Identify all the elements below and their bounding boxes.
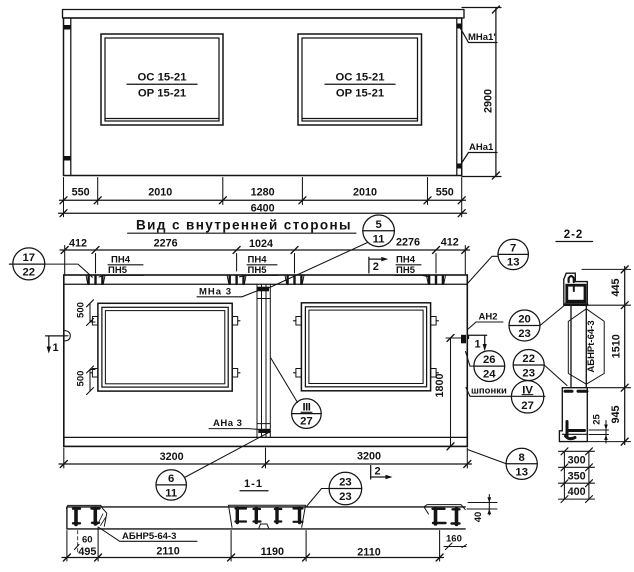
svg-text:445: 445 xyxy=(610,278,622,296)
svg-text:60: 60 xyxy=(82,535,93,546)
svg-text:1: 1 xyxy=(53,342,59,354)
svg-text:945: 945 xyxy=(610,405,622,423)
svg-text:5: 5 xyxy=(375,219,381,231)
svg-text:26: 26 xyxy=(483,354,496,366)
svg-text:шпонки: шпонки xyxy=(471,386,507,397)
svg-text:3200: 3200 xyxy=(160,451,184,463)
svg-text:6400: 6400 xyxy=(251,202,275,214)
svg-text:Вид с внутренней стороны: Вид с внутренней стороны xyxy=(136,218,352,233)
svg-text:500: 500 xyxy=(76,371,87,387)
svg-text:2276: 2276 xyxy=(154,238,178,250)
svg-text:300: 300 xyxy=(568,454,586,466)
svg-text:22: 22 xyxy=(522,353,535,365)
svg-text:13: 13 xyxy=(515,466,528,478)
svg-text:ПН4: ПН4 xyxy=(111,255,131,266)
svg-text:2010: 2010 xyxy=(148,187,172,199)
svg-text:АБНР5-64-3: АБНР5-64-3 xyxy=(122,531,176,542)
svg-text:МНа1': МНа1' xyxy=(468,32,496,43)
svg-text:20: 20 xyxy=(518,314,531,326)
svg-text:АНа1: АНа1 xyxy=(469,142,494,153)
svg-text:ПН5: ПН5 xyxy=(248,265,268,276)
svg-text:22: 22 xyxy=(23,267,36,279)
svg-text:24: 24 xyxy=(483,369,496,381)
svg-text:3200: 3200 xyxy=(357,450,381,462)
svg-text:8: 8 xyxy=(519,452,525,464)
svg-text:ОС 15-21: ОС 15-21 xyxy=(336,72,385,84)
svg-text:160: 160 xyxy=(446,534,462,545)
svg-text:25: 25 xyxy=(592,414,603,425)
svg-text:400: 400 xyxy=(568,486,586,498)
svg-text:40: 40 xyxy=(473,512,484,523)
svg-text:412: 412 xyxy=(69,238,87,250)
svg-text:2-2: 2-2 xyxy=(564,229,584,241)
svg-text:ПН5: ПН5 xyxy=(108,265,128,276)
svg-text:412: 412 xyxy=(441,237,459,249)
svg-text:ПН4: ПН4 xyxy=(396,255,416,266)
svg-text:11: 11 xyxy=(165,487,177,499)
svg-text:ПН5: ПН5 xyxy=(396,265,416,276)
svg-text:1190: 1190 xyxy=(261,546,284,558)
svg-text:1-1: 1-1 xyxy=(244,478,263,490)
svg-text:11: 11 xyxy=(373,233,385,245)
svg-text:13: 13 xyxy=(507,256,520,268)
svg-text:ПН4: ПН4 xyxy=(248,255,268,266)
svg-text:ОР 15-21: ОР 15-21 xyxy=(336,88,384,100)
svg-text:1024: 1024 xyxy=(249,238,273,250)
svg-text:2276: 2276 xyxy=(396,237,420,249)
svg-text:6: 6 xyxy=(168,473,174,485)
svg-text:27: 27 xyxy=(521,400,534,412)
svg-text:2900: 2900 xyxy=(483,89,495,113)
svg-text:2: 2 xyxy=(373,261,379,273)
svg-text:ОР 15-21: ОР 15-21 xyxy=(138,88,186,100)
svg-text:27: 27 xyxy=(300,416,313,428)
svg-text:АНа 3: АНа 3 xyxy=(213,418,242,429)
svg-text:2010: 2010 xyxy=(353,187,377,199)
svg-text:ОС 15-21: ОС 15-21 xyxy=(138,72,187,84)
svg-text:1: 1 xyxy=(475,339,481,351)
svg-text:АБНРt-64-3: АБНРt-64-3 xyxy=(586,320,597,372)
svg-text:2: 2 xyxy=(375,466,381,478)
svg-text:2110: 2110 xyxy=(156,545,179,557)
svg-text:23: 23 xyxy=(522,368,535,380)
svg-text:550: 550 xyxy=(436,187,454,199)
svg-text:500: 500 xyxy=(76,302,87,318)
svg-text:550: 550 xyxy=(72,187,90,199)
svg-text:1510: 1510 xyxy=(611,334,623,358)
svg-text:23: 23 xyxy=(339,477,352,489)
svg-text:350: 350 xyxy=(568,470,586,482)
svg-text:2110: 2110 xyxy=(357,546,380,558)
svg-text:АН2: АН2 xyxy=(479,312,498,323)
svg-text:1800: 1800 xyxy=(434,373,446,397)
svg-text:23: 23 xyxy=(339,491,352,503)
svg-text:1280: 1280 xyxy=(251,187,275,199)
svg-text:МНа 3: МНа 3 xyxy=(199,286,232,297)
svg-text:23: 23 xyxy=(518,328,531,340)
svg-text:495: 495 xyxy=(78,546,96,558)
svg-text:17: 17 xyxy=(23,252,36,264)
svg-text:7: 7 xyxy=(510,242,516,254)
